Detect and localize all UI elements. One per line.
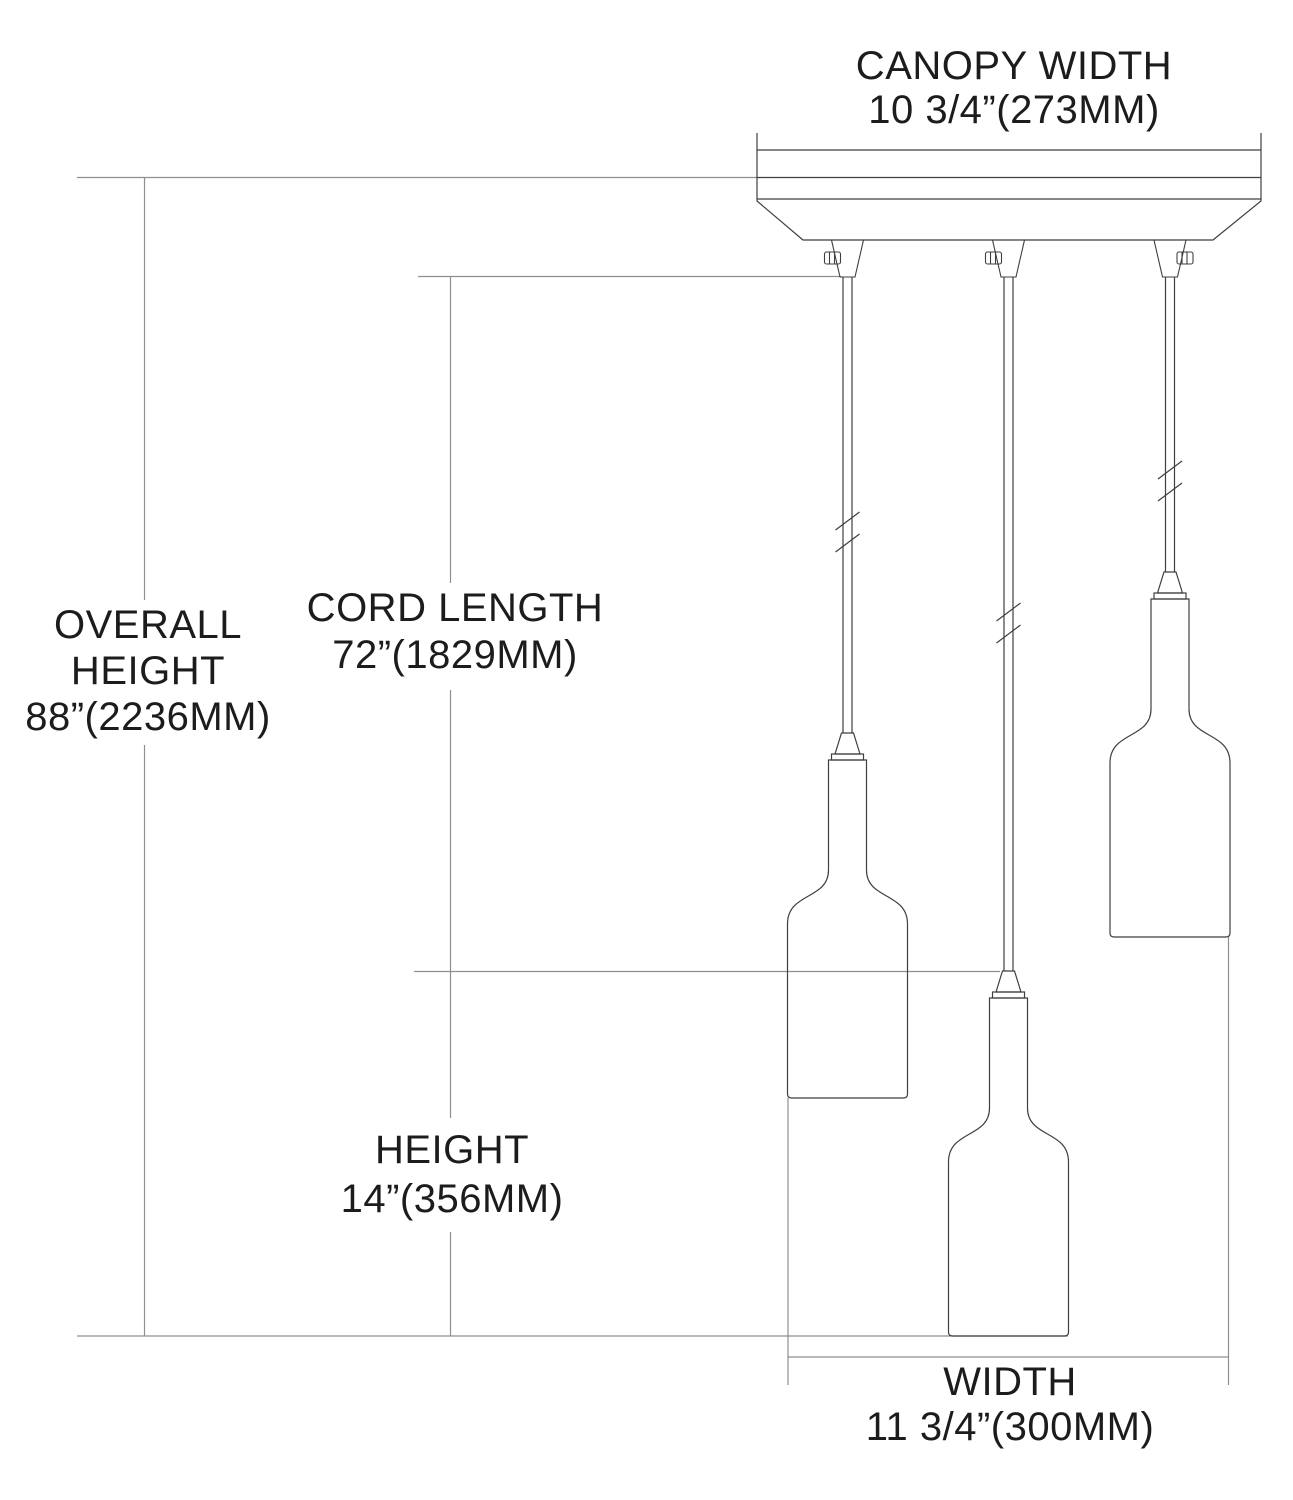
cord-break-mark (997, 625, 1021, 643)
cord-grip-2 (1154, 240, 1193, 277)
bottle-shade-outline (788, 760, 908, 1098)
collar-ring (832, 754, 864, 760)
grip-body (993, 240, 1025, 277)
grip-screw-icon (986, 252, 1002, 264)
diagram-svg (0, 0, 1293, 1500)
cord-break-mark (836, 534, 860, 552)
grip-body (832, 240, 864, 277)
grip-screw-icon (1177, 252, 1193, 264)
grip-body (1154, 240, 1186, 277)
bottle-shade-outline (949, 998, 1069, 1336)
width-label-line2: 11 3/4”(300MM) (860, 1405, 1161, 1450)
width-label: WIDTH 11 3/4”(300MM) (860, 1360, 1161, 1450)
socket (1158, 572, 1183, 593)
height-label: HEIGHT 14”(356MM) (335, 1126, 570, 1224)
left-pendant (788, 277, 908, 1098)
canopy-outline (757, 133, 1261, 240)
width-label-line1: WIDTH (860, 1360, 1161, 1405)
overall-height-label: OVERALL HEIGHT 88”(2236MM) (19, 602, 277, 740)
cord-length-label: CORD LENGTH 72”(1829MM) (301, 585, 610, 679)
height-label-line2: 14”(356MM) (335, 1175, 570, 1224)
cord-break-mark (1158, 461, 1182, 479)
cord-length-label-line1: CORD LENGTH (301, 585, 610, 632)
canopy-width-label-line1: CANOPY WIDTH (850, 44, 1178, 88)
cord-length-label-line2: 72”(1829MM) (301, 632, 610, 679)
canopy-width-label: CANOPY WIDTH 10 3/4”(273MM) (850, 44, 1178, 132)
socket (996, 971, 1021, 992)
cord-grip-0 (825, 240, 864, 277)
bottle-shade-outline (1110, 599, 1230, 937)
cord-grip-1 (986, 240, 1025, 277)
overall-height-label-line3: 88”(2236MM) (19, 694, 277, 740)
center-pendant (949, 277, 1069, 1336)
cord-break-mark (997, 603, 1021, 621)
canopy-width-label-line2: 10 3/4”(273MM) (850, 88, 1178, 132)
socket (835, 733, 860, 754)
cord-break-mark (836, 512, 860, 530)
overall-height-label-line1: OVERALL (19, 602, 277, 648)
dimension-lines (77, 178, 1229, 1386)
grip-screw-icon (825, 252, 841, 264)
height-label-line1: HEIGHT (335, 1126, 570, 1175)
collar-ring (993, 992, 1025, 998)
canopy (757, 133, 1261, 240)
overall-height-label-line2: HEIGHT (19, 648, 277, 694)
right-pendant (1110, 277, 1230, 937)
diagram-canvas: CANOPY WIDTH 10 3/4”(273MM) OVERALL HEIG… (0, 0, 1293, 1500)
collar-ring (1154, 593, 1186, 599)
cord-break-mark (1158, 483, 1182, 501)
